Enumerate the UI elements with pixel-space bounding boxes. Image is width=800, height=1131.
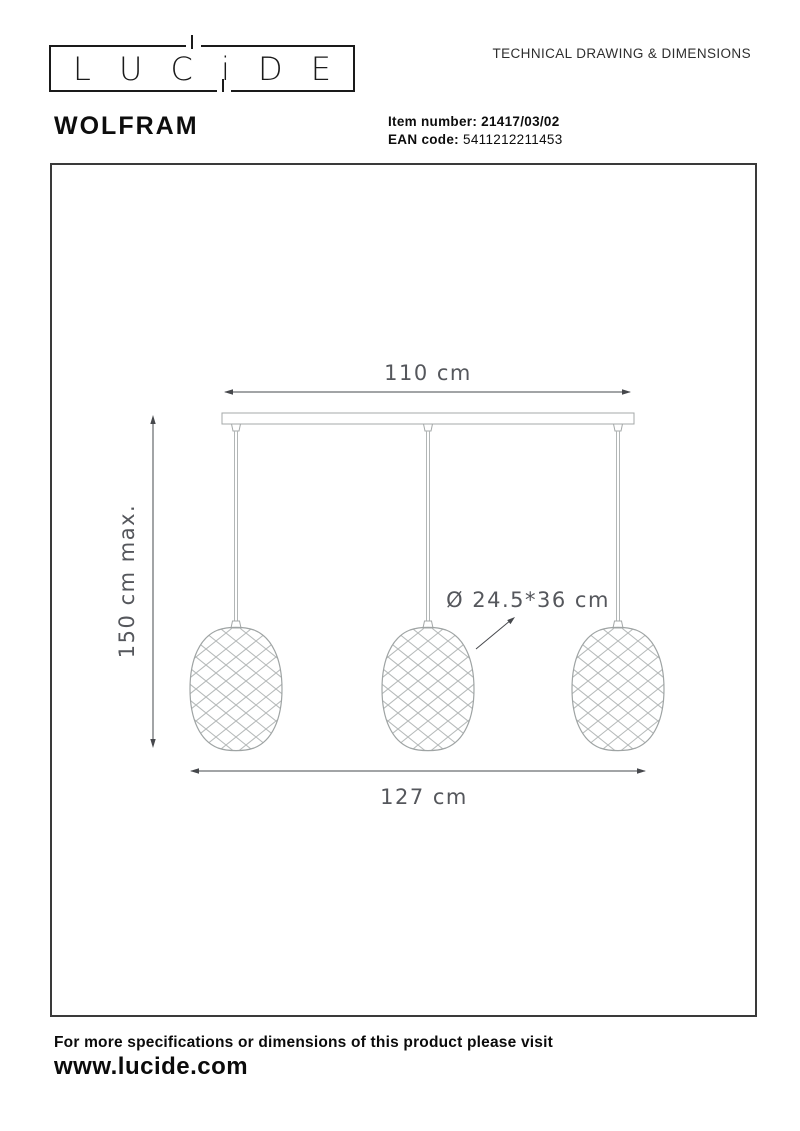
item-number-row: Item number: 21417/03/02 xyxy=(388,113,563,131)
item-number-value: 21417/03/02 xyxy=(481,114,559,129)
logo-letter: U xyxy=(119,53,142,85)
product-name: WOLFRAM xyxy=(54,112,199,141)
lucide-logo: L U C i D E xyxy=(49,45,355,92)
logo-letter: E xyxy=(311,53,331,85)
product-identifiers: Item number: 21417/03/02 EAN code: 54112… xyxy=(388,113,563,149)
dimension-label-shade-size: Ø 24.5*36 cm xyxy=(446,588,610,612)
page-title: TECHNICAL DRAWING & DIMENSIONS xyxy=(492,46,751,61)
logo-letter: C xyxy=(171,53,193,85)
logo-c-accent-line xyxy=(191,35,193,49)
logo-i-stem-line xyxy=(222,79,224,92)
ean-value: 5411212211453 xyxy=(463,132,563,147)
item-number-label: Item number: xyxy=(388,114,477,129)
logo-border-gap-top xyxy=(186,42,201,49)
footer-website: www.lucide.com xyxy=(54,1053,248,1081)
logo-border-gap-bottom xyxy=(217,86,231,93)
footer-note: For more specifications or dimensions of… xyxy=(54,1034,553,1052)
logo-letter: D xyxy=(258,53,283,85)
ean-label: EAN code: xyxy=(388,132,459,147)
ean-row: EAN code: 5411212211453 xyxy=(388,131,563,149)
dimension-label-top-width: 110 cm xyxy=(384,361,472,385)
dimension-label-bottom-width: 127 cm xyxy=(380,785,468,809)
drawing-frame xyxy=(50,163,757,1017)
dimension-label-height: 150 cm max. xyxy=(115,504,139,658)
logo-letter: L xyxy=(73,53,91,85)
